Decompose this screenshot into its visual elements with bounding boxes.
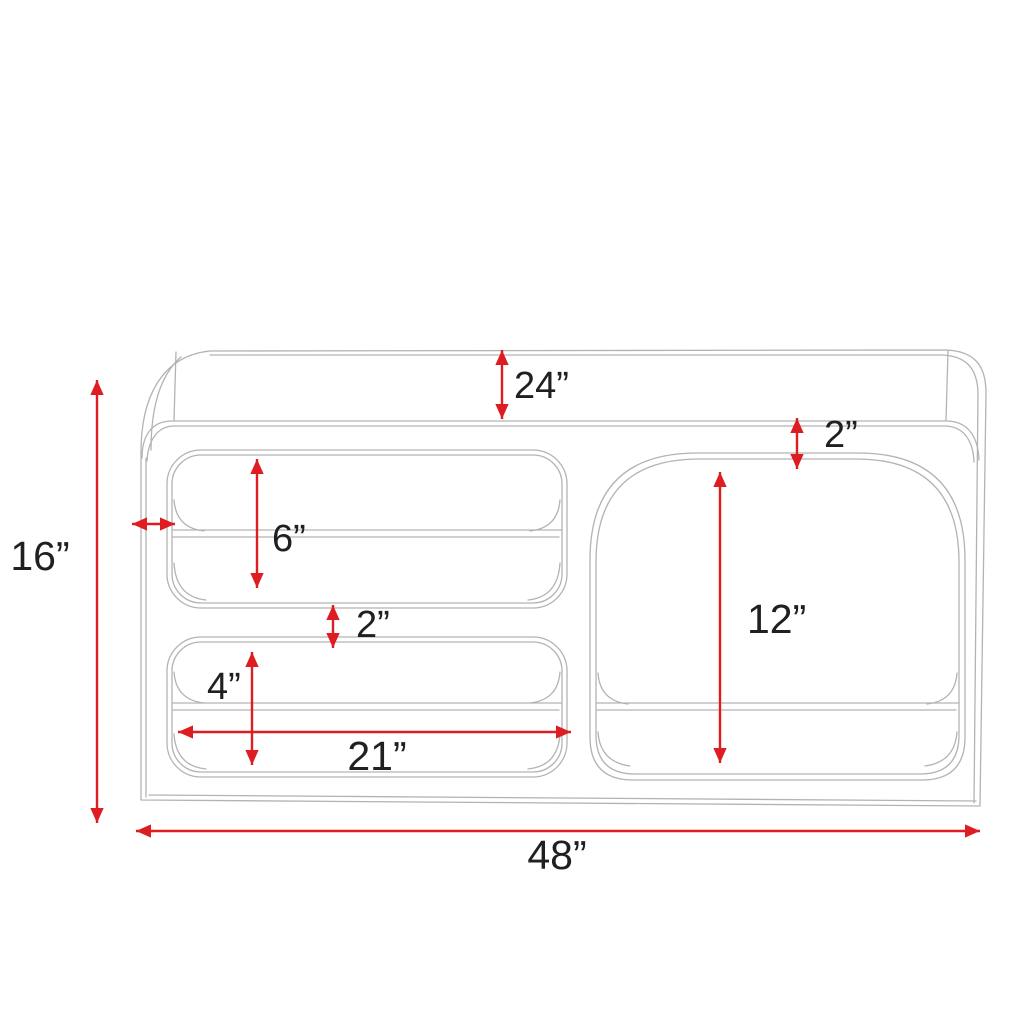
dim-overall-width-label: 48” (527, 832, 586, 878)
upper-cubby-corner-arc-top-left (174, 500, 204, 531)
dim-right-cubby-height: 12” (720, 472, 806, 763)
lower-cubby-corner-arc-bottom-left (174, 734, 206, 769)
dim-lower-cubby-height: 4” (207, 652, 252, 765)
cabinet-outline (141, 350, 986, 806)
dim-cubby-gap-label: 2” (356, 604, 390, 646)
dim-cubby-width-label: 21” (347, 733, 406, 779)
upper-cubby-corner-arc-bottom-left (174, 563, 206, 600)
lower-cubby-corner-arc-top-right (530, 672, 560, 703)
upper-cubby-outline-inner (172, 455, 562, 603)
dim-top-depth: 24” (502, 350, 569, 419)
upper-cubby-corner-arc-bottom-right (528, 563, 560, 600)
dim-top-right-gap-label: 2” (824, 414, 858, 456)
cabinet-linework (141, 350, 986, 806)
dim-upper-cubby-height-label: 6” (272, 518, 306, 560)
cabinet-bottom-edge-inner (149, 795, 976, 801)
upper-cubby-outline (167, 450, 567, 608)
shelf-unit-dimension-drawing: 24” 2” 16” 6” (0, 0, 1024, 1024)
dim-overall-height: 16” (10, 380, 97, 823)
upper-cubby-corner-arc-top-right (530, 500, 560, 531)
dim-right-cubby-height-label: 12” (747, 596, 806, 642)
dim-lower-cubby-height-label: 4” (207, 666, 241, 708)
dim-overall-height-label: 16” (10, 533, 69, 579)
dimension-diagram-canvas: 24” 2” 16” 6” (0, 0, 1024, 1024)
dim-top-depth-label: 24” (514, 365, 569, 407)
right-cubby-corner-arc-top-left (598, 673, 628, 704)
lower-cubby-corner-arc-top-left (174, 672, 204, 703)
dim-overall-width: 48” (136, 831, 980, 878)
cabinet-top-back-edge-inner (210, 355, 978, 803)
dim-upper-cubby-height: 6” (257, 459, 306, 588)
dimension-annotations: 24” 2” 16” 6” (10, 350, 980, 878)
cabinet-top-right-crease (946, 351, 948, 420)
lower-cubby-corner-arc-bottom-right (528, 734, 560, 769)
dim-top-right-gap: 2” (797, 414, 858, 469)
right-cubby-corner-arc-top-right (927, 673, 957, 704)
